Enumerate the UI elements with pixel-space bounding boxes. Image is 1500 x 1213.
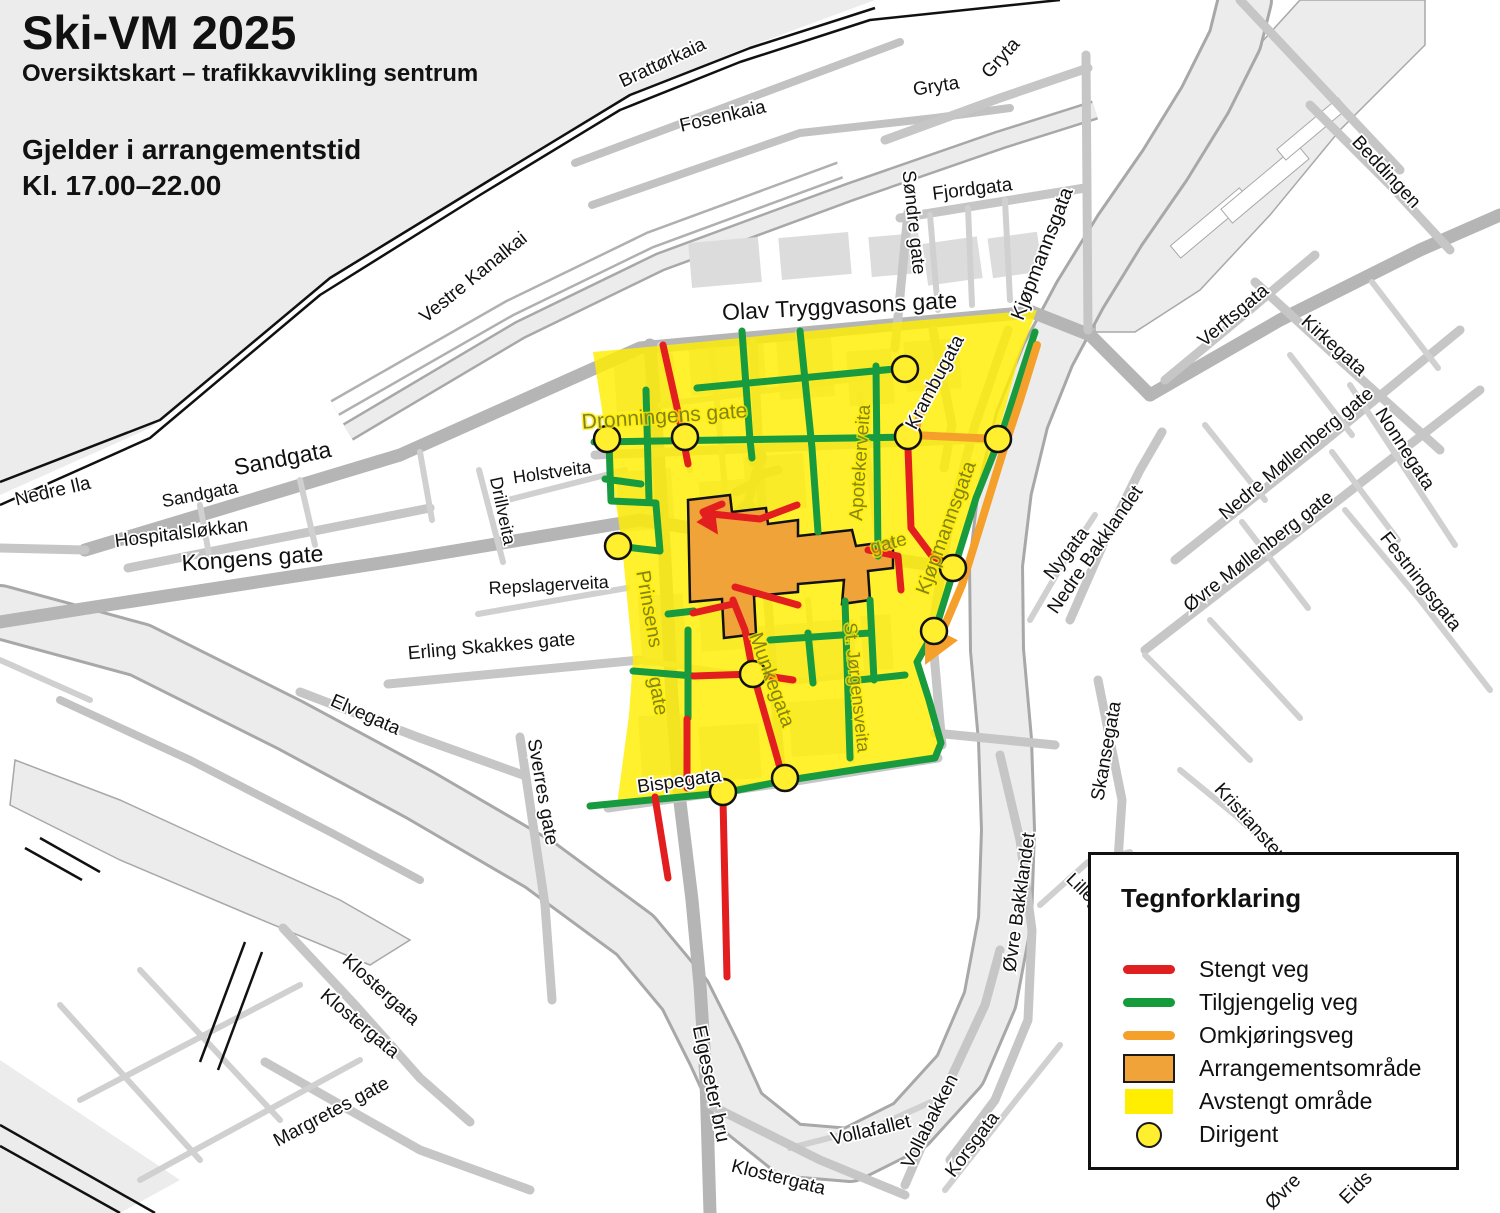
- legend-item: Dirigent: [1121, 1119, 1456, 1150]
- map-title-panel: Ski-VM 2025 Oversiktskart – trafikkavvik…: [22, 8, 478, 202]
- legend-item: Tilgjengelig veg: [1121, 987, 1456, 1018]
- legend-item-label: Arrangementsområde: [1199, 1055, 1421, 1082]
- legend-line-swatch: [1123, 1031, 1175, 1040]
- map-page: BrattørkaiaFosenkaiaGrytaGrytaVestre Kan…: [0, 0, 1500, 1213]
- open-road-route: [808, 633, 813, 683]
- legend-item-label: Dirigent: [1199, 1121, 1278, 1148]
- closed-road-route: [723, 800, 727, 977]
- validity-line: Gjelder i arrangementstid: [22, 134, 478, 166]
- time-range: Kl. 17.00–22.00: [22, 170, 478, 202]
- legend-item-label: Tilgjengelig veg: [1199, 989, 1358, 1016]
- page-title: Ski-VM 2025: [22, 8, 478, 57]
- dirigent-marker: [772, 765, 798, 791]
- open-road-route: [876, 366, 878, 556]
- legend-item-label: Avstengt område: [1199, 1088, 1372, 1115]
- dirigent-marker: [892, 356, 918, 382]
- dirigent-marker: [672, 424, 698, 450]
- open-road-route: [870, 600, 874, 680]
- legend-line-swatch: [1123, 998, 1175, 1007]
- legend-item: Arrangementsområde: [1121, 1053, 1456, 1084]
- legend-item: Avstengt område: [1121, 1086, 1456, 1117]
- legend-item: Stengt veg: [1121, 954, 1456, 985]
- legend-title: Tegnforklaring: [1121, 883, 1456, 914]
- legend-item: Omkjøringsveg: [1121, 1020, 1456, 1051]
- legend-item-label: Omkjøringsveg: [1199, 1022, 1354, 1049]
- dirigent-marker: [921, 618, 947, 644]
- legend-rect-swatch: [1125, 1089, 1173, 1114]
- legend-items: Stengt vegTilgjengelig vegOmkjøringsvegA…: [1121, 954, 1456, 1150]
- legend-circle-swatch: [1136, 1122, 1162, 1148]
- legend: Tegnforklaring Stengt vegTilgjengelig ve…: [1088, 852, 1459, 1170]
- dirigent-marker: [605, 533, 631, 559]
- legend-rect-swatch: [1123, 1054, 1175, 1083]
- legend-item-label: Stengt veg: [1199, 956, 1309, 983]
- open-road-route: [605, 479, 641, 484]
- page-subtitle: Oversiktskart – trafikkavvikling sentrum: [22, 60, 478, 88]
- dirigent-marker: [985, 426, 1011, 452]
- legend-line-swatch: [1123, 965, 1175, 974]
